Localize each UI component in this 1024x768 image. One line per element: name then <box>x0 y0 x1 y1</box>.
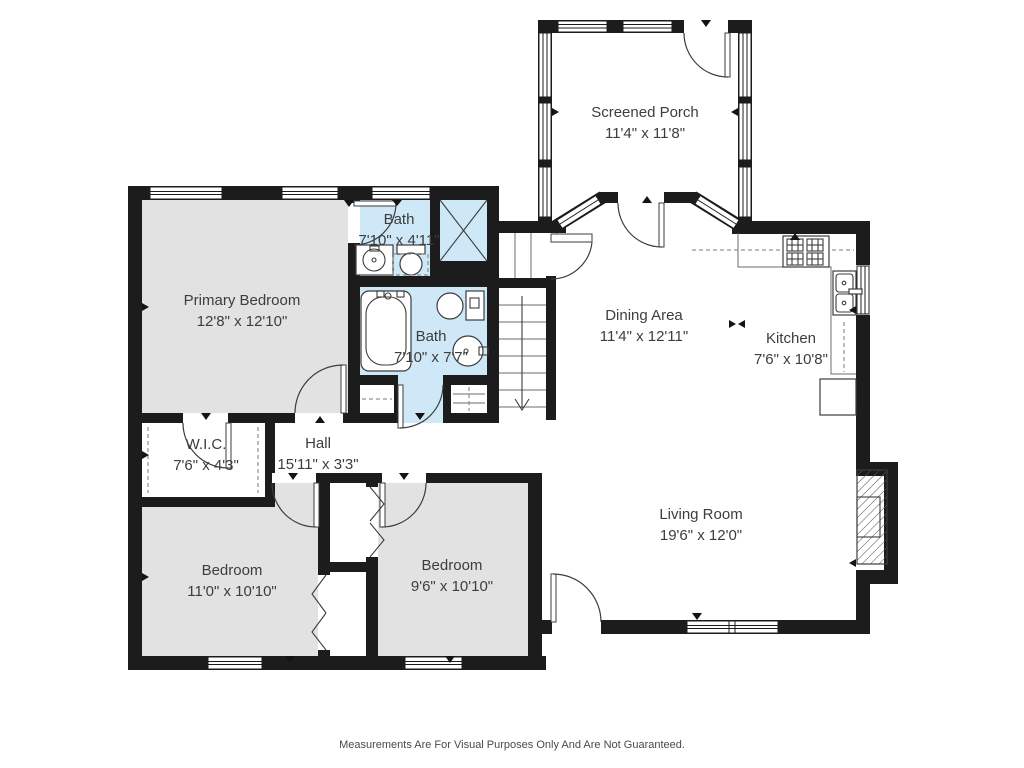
angled-porch-screen <box>698 200 736 224</box>
porch-screen <box>739 33 751 97</box>
room-label-dining-area: Dining Area 11'4" x 12'11" <box>600 305 688 347</box>
room-label-kitchen: Kitchen 7'6" x 10'8" <box>754 328 828 370</box>
bedroom-left-dims: 11'0" x 10'10" <box>187 581 277 602</box>
room-label-bedroom-left: Bedroom 11'0" x 10'10" <box>187 560 277 602</box>
linen-shelves <box>453 387 485 411</box>
disclaimer-text: Measurements Are For Visual Purposes Onl… <box>339 739 685 751</box>
room-label-hall: Hall 15'11" x 3'3" <box>277 433 358 475</box>
living-room-dims: 19'6" x 12'0" <box>659 525 742 546</box>
stairs-icon <box>499 233 546 410</box>
porch-screen <box>539 33 551 97</box>
porch-screen <box>739 167 751 217</box>
front-door <box>551 574 601 622</box>
porch-screen <box>739 103 751 160</box>
bath-upper-dims: 7'10" x 4'11" <box>358 230 439 251</box>
screened-porch-name: Screened Porch <box>591 102 699 123</box>
living-room-name: Living Room <box>659 504 742 525</box>
window <box>405 657 462 669</box>
hall-name: Hall <box>277 433 358 454</box>
bath-upper-name: Bath <box>358 209 439 230</box>
kitchen-fixtures <box>692 233 862 415</box>
window <box>150 187 222 199</box>
porch-screen <box>539 167 551 217</box>
room-label-bath-lower: Bath 7'10" x 7'7" <box>394 326 468 368</box>
window <box>372 187 430 199</box>
porch-screen <box>558 21 607 32</box>
bedroom-left-name: Bedroom <box>187 560 277 581</box>
room-label-living-room: Living Room 19'6" x 12'0" <box>659 504 742 546</box>
room-label-primary-bedroom: Primary Bedroom 12'8" x 12'10" <box>184 290 301 332</box>
porch-entry-door <box>684 33 730 77</box>
fireplace-icon <box>857 470 887 564</box>
stair-door <box>551 234 592 279</box>
hall-dims: 15'11" x 3'3" <box>277 454 358 475</box>
primary-bedroom-dims: 12'8" x 12'10" <box>184 311 301 332</box>
window <box>282 187 338 199</box>
window <box>208 657 262 669</box>
stairs-down-arrow <box>515 296 529 410</box>
room-label-wic: W.I.C. 7'6" x 4'3" <box>173 434 239 476</box>
wic-dims: 7'6" x 4'3" <box>173 455 239 476</box>
angled-porch-screen <box>560 200 598 224</box>
porch-screen <box>539 103 551 160</box>
fridge-icon <box>820 379 856 415</box>
stove-icon <box>783 236 829 267</box>
room-label-screened-porch: Screened Porch 11'4" x 11'8" <box>591 102 699 144</box>
bedroom-right-dims: 9'6" x 10'10" <box>411 576 493 597</box>
floor-plan: Screened Porch 11'4" x 11'8" Primary Bed… <box>0 0 1024 768</box>
closet-lower-floor <box>330 572 366 656</box>
porch-screen <box>623 21 672 32</box>
kitchen-name: Kitchen <box>754 328 828 349</box>
room-label-bedroom-right: Bedroom 9'6" x 10'10" <box>411 555 493 597</box>
room-label-bath-upper: Bath 7'10" x 4'11" <box>358 209 439 251</box>
closet-upper-floor <box>330 483 366 562</box>
bedroom-right-name: Bedroom <box>411 555 493 576</box>
double-window <box>687 621 778 633</box>
dining-area-name: Dining Area <box>600 305 688 326</box>
porch-dining-door <box>618 203 664 247</box>
primary-bedroom-name: Primary Bedroom <box>184 290 301 311</box>
bath-lower-name: Bath <box>394 326 468 347</box>
screened-porch-dims: 11'4" x 11'8" <box>591 123 699 144</box>
wic-name: W.I.C. <box>173 434 239 455</box>
floor-plan-drawing <box>0 0 1024 768</box>
dining-area-dims: 11'4" x 12'11" <box>600 326 688 347</box>
bath-lower-dims: 7'10" x 7'7" <box>394 347 468 368</box>
kitchen-dims: 7'6" x 10'8" <box>754 349 828 370</box>
